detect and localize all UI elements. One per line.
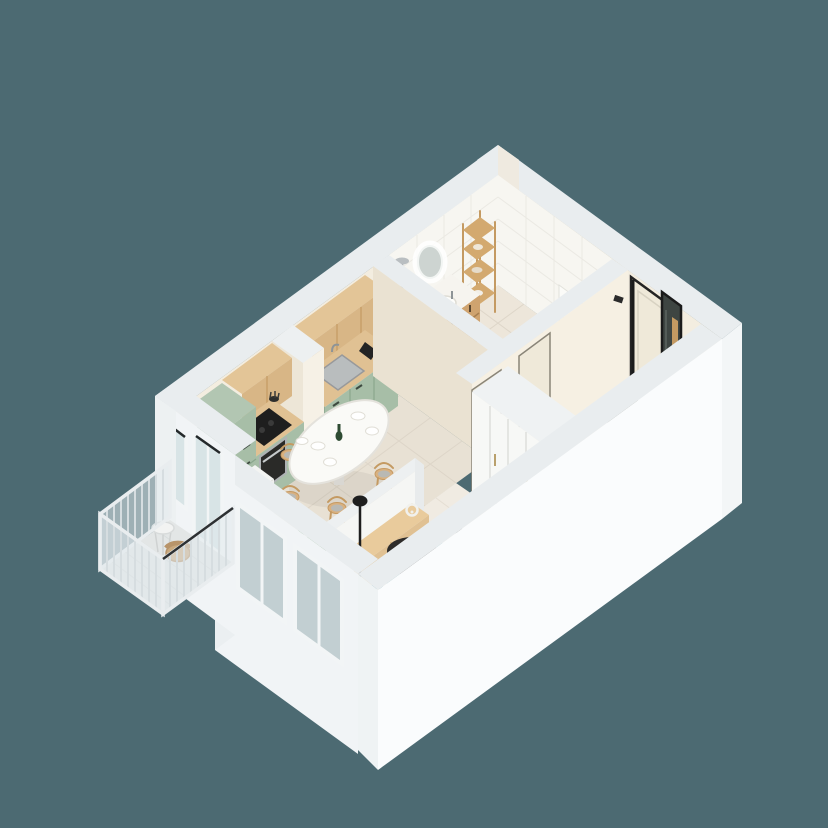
basket bbox=[472, 267, 483, 273]
plate bbox=[351, 412, 365, 420]
plate bbox=[296, 438, 308, 445]
plate bbox=[311, 442, 325, 450]
round-led-mirror bbox=[415, 243, 445, 281]
plate bbox=[366, 427, 379, 435]
floor-plan-render bbox=[0, 0, 828, 828]
isometric-apartment-scene bbox=[0, 0, 828, 828]
e-corner-face bbox=[722, 323, 742, 519]
towel-roll bbox=[473, 244, 483, 250]
se-wall-end-face bbox=[358, 574, 378, 770]
plate bbox=[324, 458, 337, 466]
